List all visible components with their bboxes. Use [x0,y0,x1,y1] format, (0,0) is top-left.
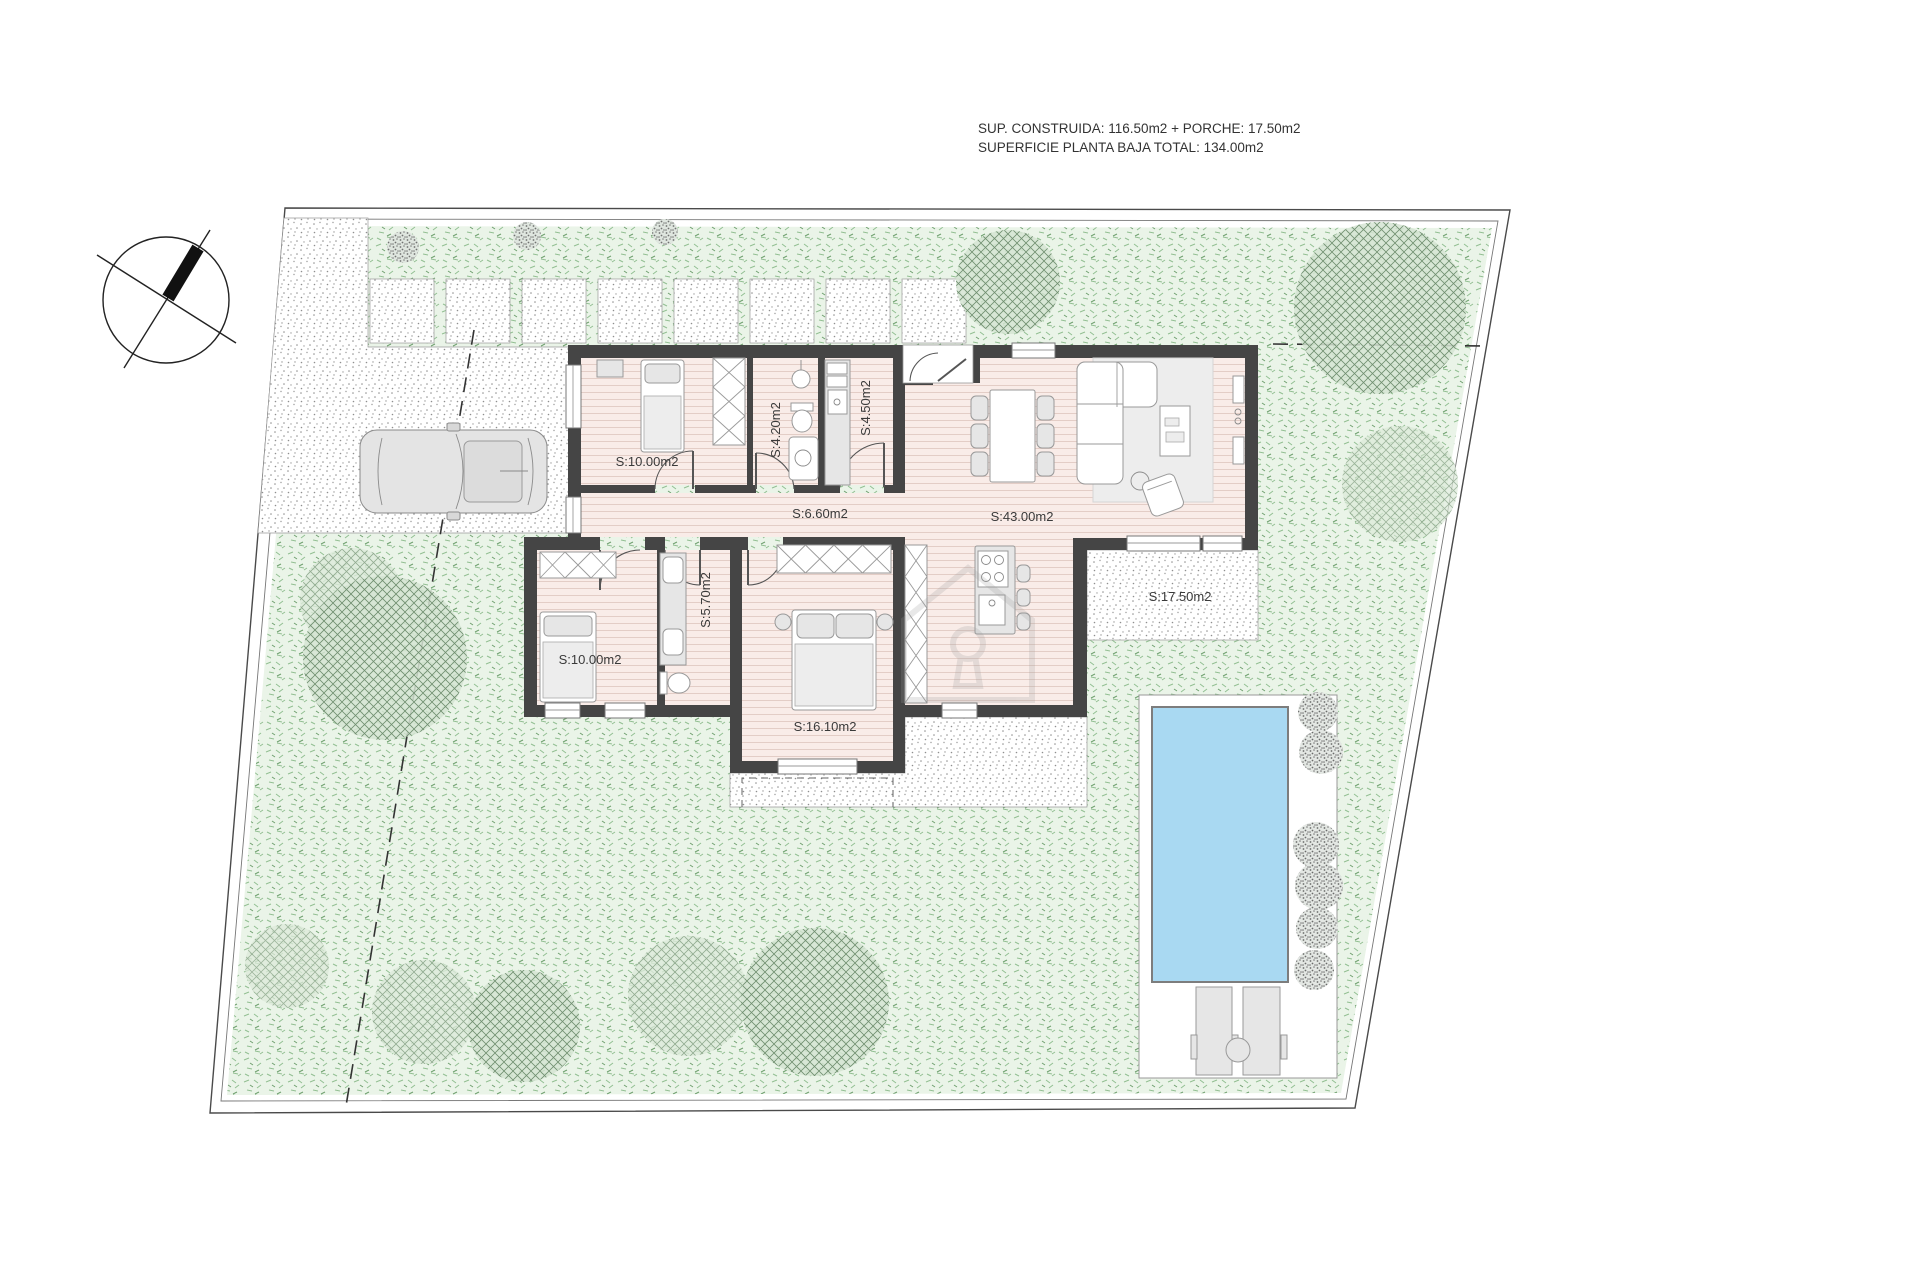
room-label-bedroom-2: S:10.00m2 [559,652,622,667]
floor-plan-page: S:10.00m2 S:4.20m2 S:4.50m2 S:6.60m2 S:4… [0,0,1920,1280]
tree [1342,426,1458,542]
bush [387,231,419,263]
entrance-door [903,345,973,383]
wardrobe [713,358,745,445]
bush [513,222,541,250]
tree [372,960,476,1064]
window [605,703,645,718]
window [1203,536,1242,551]
tree [1294,222,1466,394]
tree [468,970,580,1082]
room-label-laundry: S:4.50m2 [858,380,873,436]
title-line-2: SUPERFICIE PLANTA BAJA TOTAL: 134.00m2 [978,140,1264,155]
room-label-hallway: S:6.60m2 [792,506,848,521]
furniture-laundry [825,360,850,485]
window [778,759,857,774]
room-label-bathroom-1: S:4.20m2 [768,402,783,458]
wardrobe [540,552,616,578]
furniture-bedroom-3 [775,545,893,710]
coffee-table [1160,406,1190,456]
title-block: SUP. CONSTRUIDA: 116.50m2 + PORCHE: 17.5… [978,121,1301,155]
room-label-porch: S:17.50m2 [1149,589,1212,604]
dining-table [990,390,1035,482]
car [360,423,547,520]
tree [245,924,329,1008]
pool-side-table [1226,1038,1250,1062]
tree [303,576,467,740]
pool-water [1152,707,1288,982]
window [942,703,977,718]
window [566,497,581,533]
tv-unit [1233,376,1244,403]
room-label-living: S:43.00m2 [991,509,1054,524]
room-label-bathroom-2: S:5.70m2 [698,572,713,628]
window [1127,536,1200,551]
tree [956,230,1060,334]
tree [741,928,889,1076]
floor-plan-drawing: S:10.00m2 S:4.20m2 S:4.50m2 S:6.60m2 S:4… [0,0,1920,1280]
tall-cabinet [905,545,927,703]
window [566,365,581,428]
title-line-1: SUP. CONSTRUIDA: 116.50m2 + PORCHE: 17.5… [978,121,1301,136]
room-label-bedroom-1: S:10.00m2 [616,454,679,469]
furniture-dining [971,390,1054,482]
room-label-bedroom-3: S:16.10m2 [794,719,857,734]
tree [628,936,748,1056]
window [545,703,580,718]
north-arrow-icon [97,230,236,368]
bush [652,219,678,245]
window [1012,343,1055,358]
wardrobe [777,545,891,573]
